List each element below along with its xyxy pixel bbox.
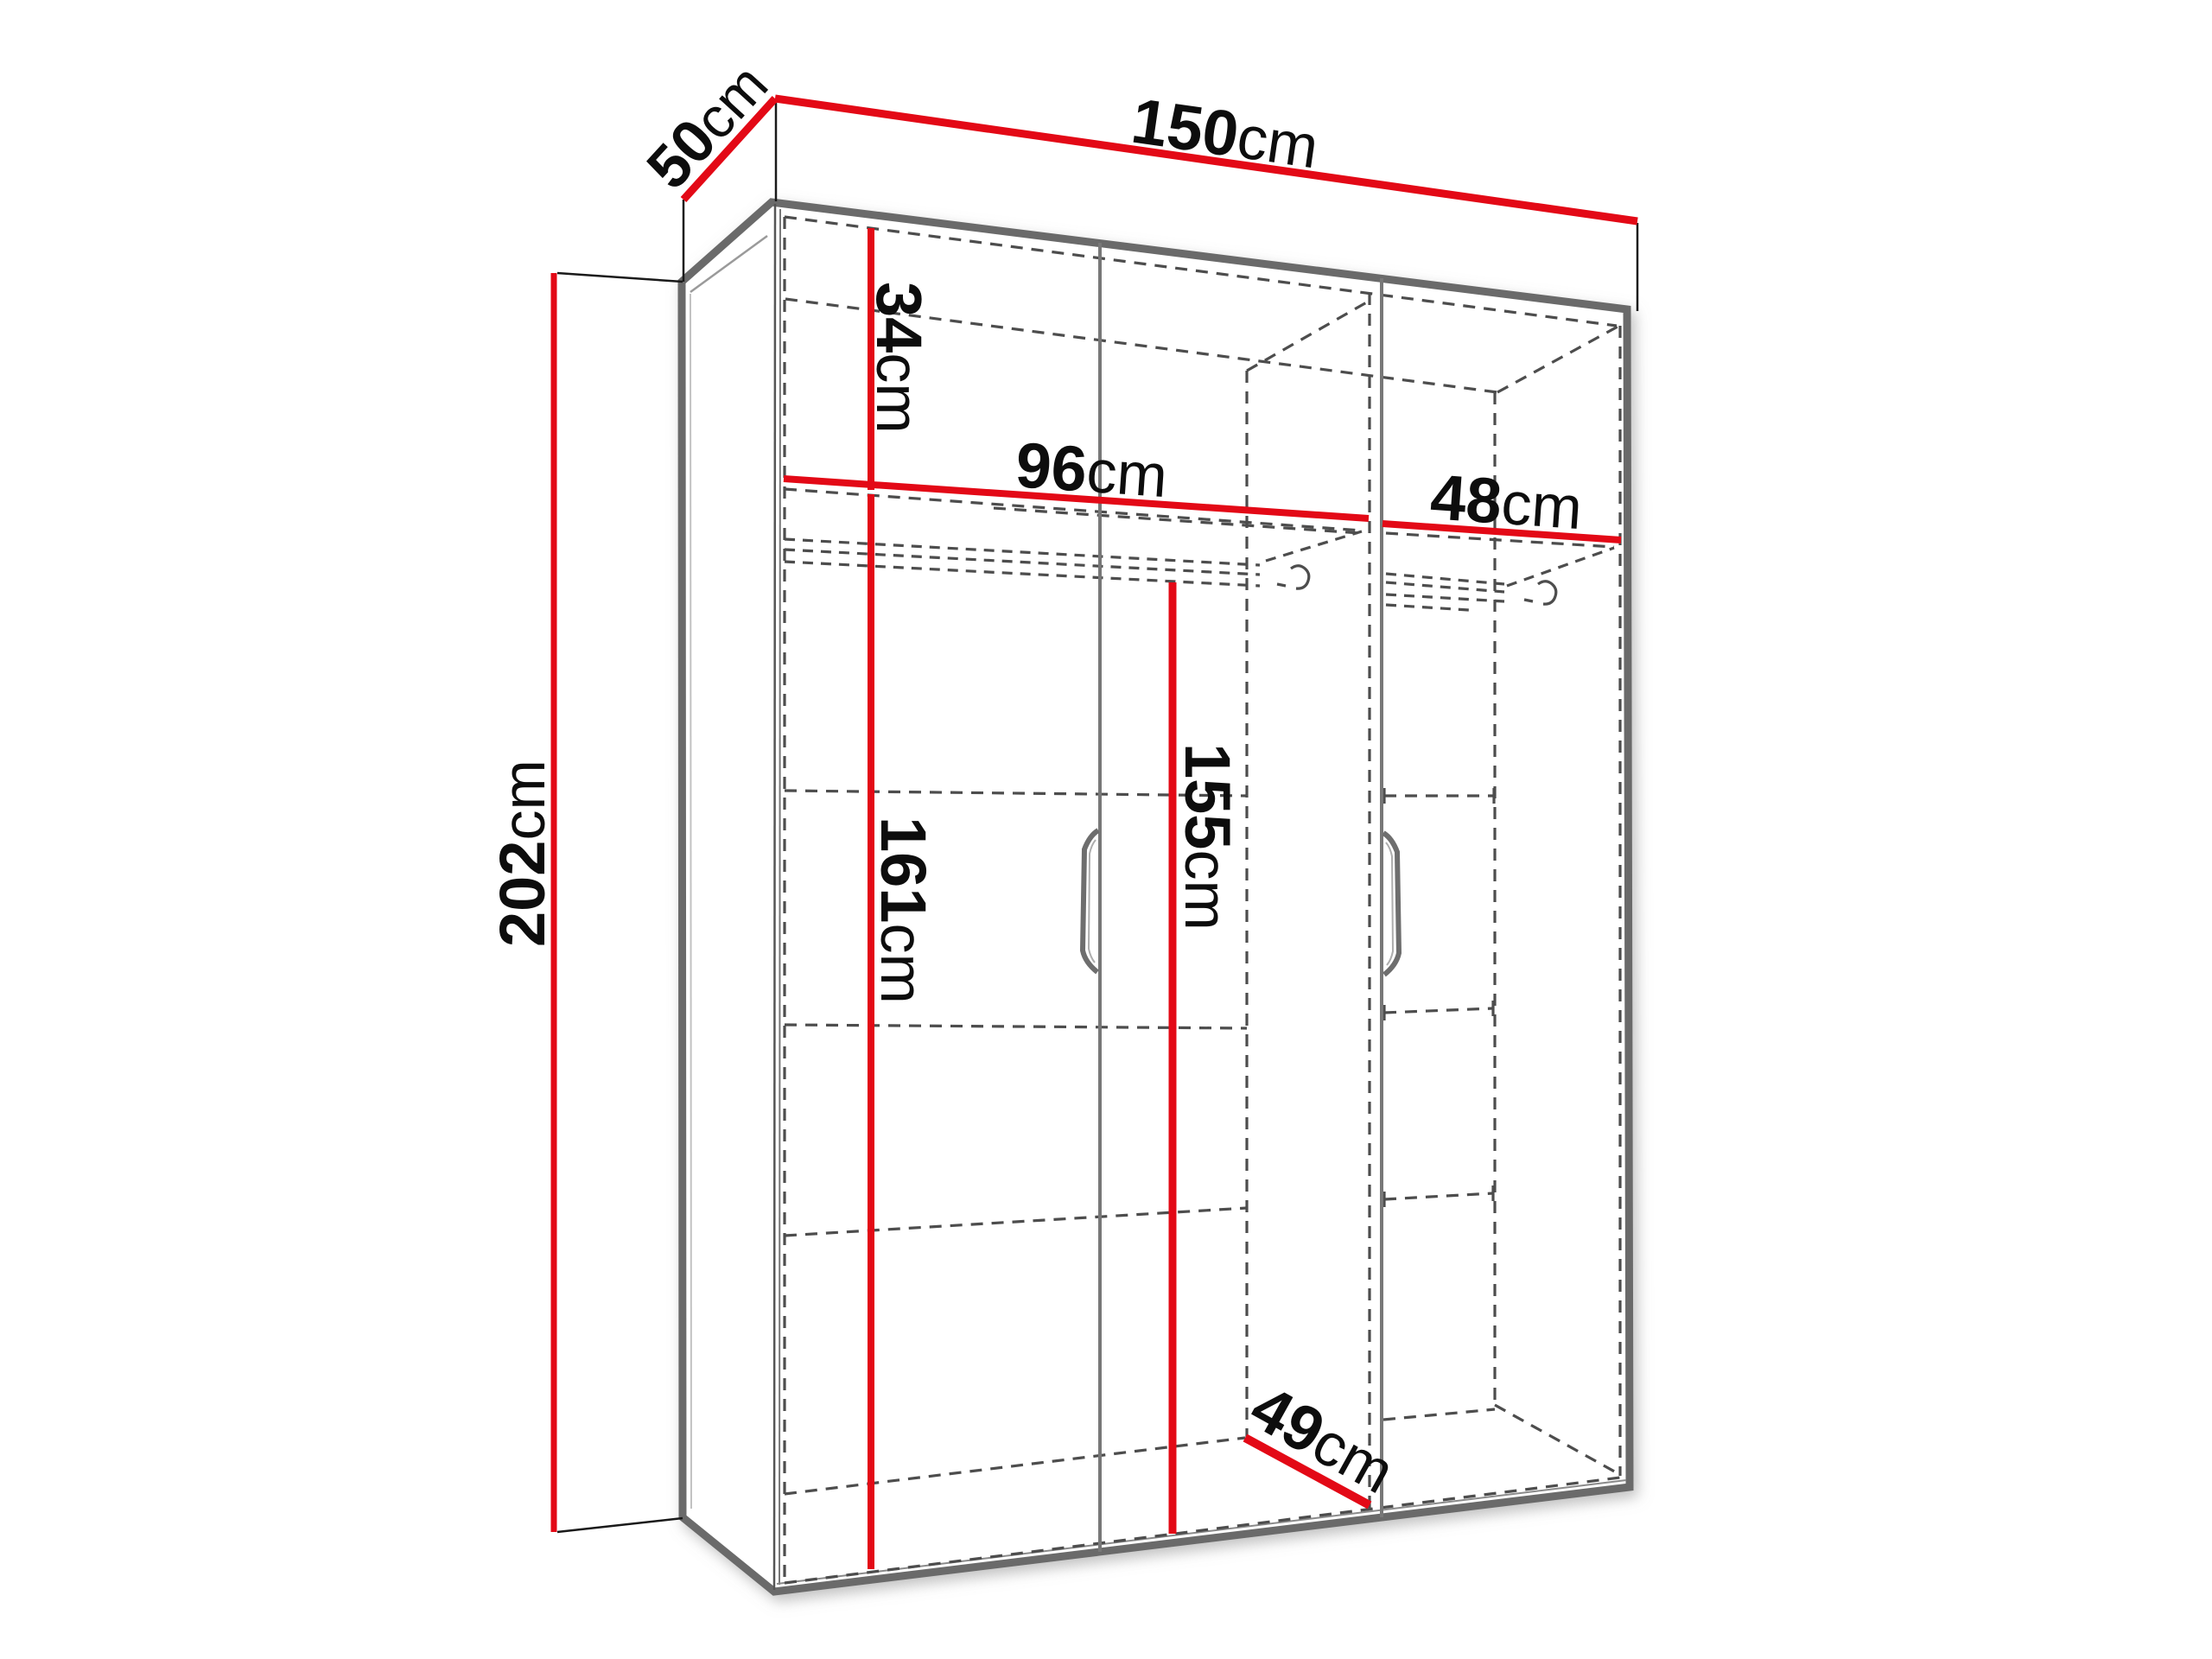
svg-text:96cm: 96cm [1014,429,1170,511]
svg-text:202cm: 202cm [486,760,558,947]
svg-text:34cm: 34cm [863,282,935,434]
svg-text:155cm: 155cm [1172,743,1243,931]
svg-text:150cm: 150cm [1128,85,1323,182]
svg-text:161cm: 161cm [868,817,939,1004]
svg-text:48cm: 48cm [1428,461,1585,543]
